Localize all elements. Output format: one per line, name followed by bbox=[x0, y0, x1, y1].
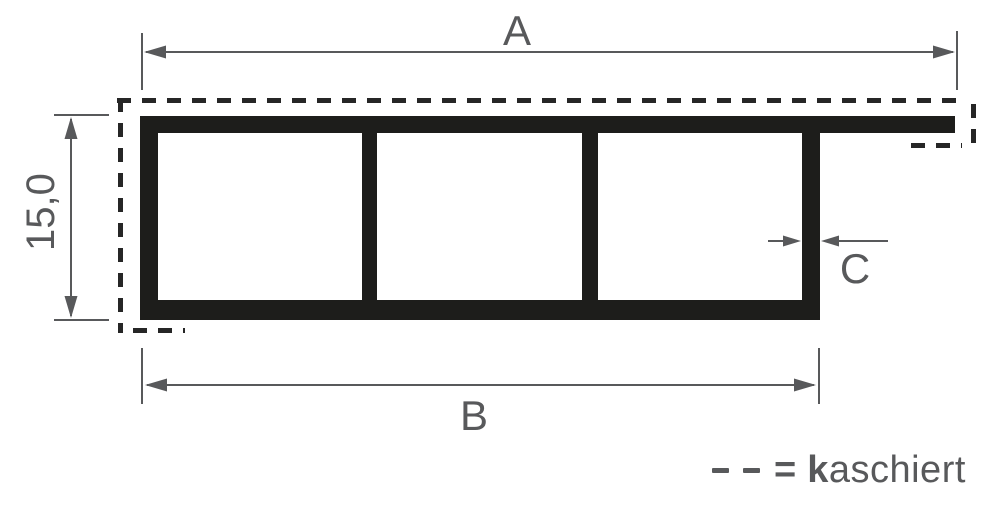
dim-height-arrow-top bbox=[65, 117, 78, 139]
dashed-line-icon bbox=[743, 468, 760, 473]
legend-term: kaschiert bbox=[807, 449, 966, 491]
dashed-line-icon bbox=[712, 468, 729, 473]
dim-b-arrow-left bbox=[145, 379, 167, 392]
legend-term-remainder: aschiert bbox=[829, 449, 966, 491]
dim-height-arrow-bottom bbox=[65, 296, 78, 318]
dim-a-arrow-right bbox=[933, 46, 955, 59]
dim-height-label: 15,0 bbox=[20, 152, 62, 272]
legend-equals-sign: = bbox=[774, 449, 797, 491]
dim-a-arrow-left bbox=[144, 46, 166, 59]
technical-drawing-canvas: A B C 15,0 = kaschiert bbox=[0, 0, 994, 523]
dim-c-label: C bbox=[833, 247, 877, 291]
dim-a-label: A bbox=[494, 9, 540, 53]
legend-term-bold-initial: k bbox=[807, 449, 829, 491]
legend: = kaschiert bbox=[712, 449, 966, 491]
dim-b-label: B bbox=[451, 394, 497, 438]
dim-c-arrow-right bbox=[821, 236, 839, 247]
dim-b-arrow-right bbox=[794, 379, 816, 392]
dim-c-arrow-left bbox=[783, 236, 801, 247]
